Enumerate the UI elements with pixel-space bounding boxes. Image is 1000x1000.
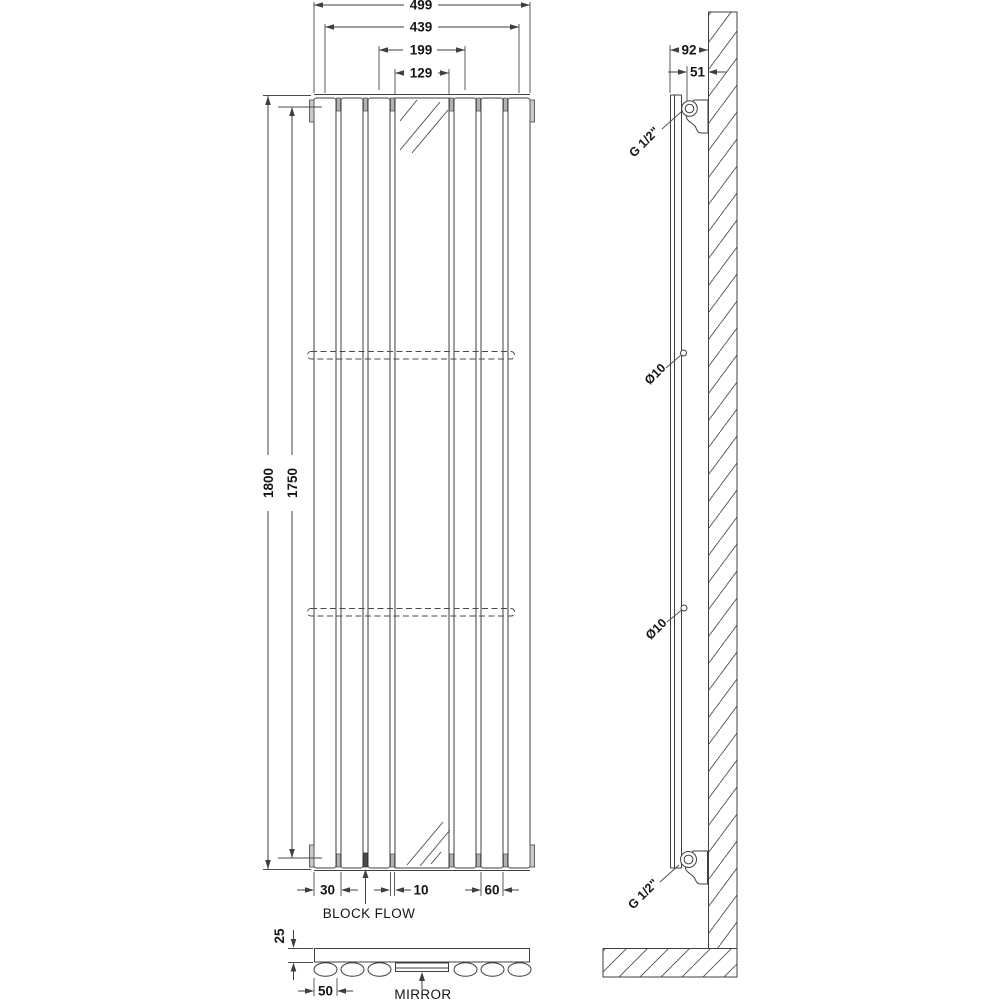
dim-oval-width-text: 50 bbox=[318, 984, 333, 999]
radiator-profile bbox=[671, 95, 682, 868]
mirror-callout: MIRROR bbox=[394, 972, 451, 1000]
dim-overall-width-text: 499 bbox=[410, 0, 433, 13]
top-connection-label: G 1/2" bbox=[626, 124, 662, 160]
dim-centers-width-text: 439 bbox=[410, 20, 433, 35]
dim-overall-height-text: 1800 bbox=[261, 468, 276, 498]
dim-mirror-frame-text: 199 bbox=[410, 43, 433, 58]
plan-view: 25 50 MIRROR bbox=[272, 928, 531, 1000]
dim-wall-to-connection-text: 51 bbox=[690, 65, 706, 80]
panel bbox=[508, 98, 530, 868]
dim-fixing-height-text: 1750 bbox=[285, 468, 300, 498]
bottom-connection-bracket bbox=[681, 851, 708, 884]
dim-panel-pitch: 60 bbox=[465, 872, 519, 898]
dim-panel-depth-text: 25 bbox=[272, 928, 287, 944]
plan-mirror-bar bbox=[396, 963, 449, 972]
dim-mirror-glass-text: 129 bbox=[410, 66, 433, 81]
dim-panel-text: 30 bbox=[320, 883, 335, 898]
bottom-connection-callout: G 1/2" bbox=[625, 865, 679, 912]
front-view: 499 439 199 129 18 bbox=[261, 0, 535, 921]
side-view: 92 51 G 1/2" Ø10 Ø10 G 1/2" bbox=[603, 12, 737, 977]
lower-fixing-callout: Ø10 bbox=[643, 611, 681, 643]
floor-hatch bbox=[603, 949, 737, 978]
panel bbox=[454, 98, 476, 868]
block-flow-element bbox=[364, 853, 368, 867]
mirror-panel bbox=[395, 98, 449, 868]
top-connection-bracket bbox=[682, 100, 708, 133]
dim-gap-text: 10 bbox=[413, 883, 428, 898]
upper-fixing-point bbox=[681, 350, 687, 356]
block-flow-callout: BLOCK FLOW bbox=[323, 869, 416, 921]
panel bbox=[314, 98, 336, 868]
dim-gap: 10 bbox=[374, 872, 429, 898]
upper-fixing-label: Ø10 bbox=[642, 361, 669, 388]
top-connection-callout: G 1/2" bbox=[626, 112, 681, 160]
mirror-label: MIRROR bbox=[394, 987, 451, 1000]
block-flow-label: BLOCK FLOW bbox=[323, 906, 416, 921]
dim-panel-pitch-text: 60 bbox=[484, 883, 499, 898]
lower-fixing-label: Ø10 bbox=[643, 616, 670, 643]
panel bbox=[481, 98, 503, 868]
wall-hatch bbox=[709, 12, 738, 949]
dim-oval-width: 50 bbox=[298, 978, 353, 999]
lower-fixing-point bbox=[681, 605, 687, 611]
dim-panel: 30 bbox=[297, 872, 358, 898]
plan-panel-face bbox=[315, 949, 530, 963]
panel bbox=[341, 98, 363, 868]
bottom-connection-label: G 1/2" bbox=[625, 876, 661, 912]
dim-depth-text: 92 bbox=[681, 43, 696, 58]
technical-drawing: 499 439 199 129 18 bbox=[0, 0, 1000, 1000]
panel bbox=[368, 98, 390, 868]
dim-panel-depth: 25 bbox=[272, 928, 313, 980]
dim-mirror-glass: 129 bbox=[395, 66, 449, 95]
